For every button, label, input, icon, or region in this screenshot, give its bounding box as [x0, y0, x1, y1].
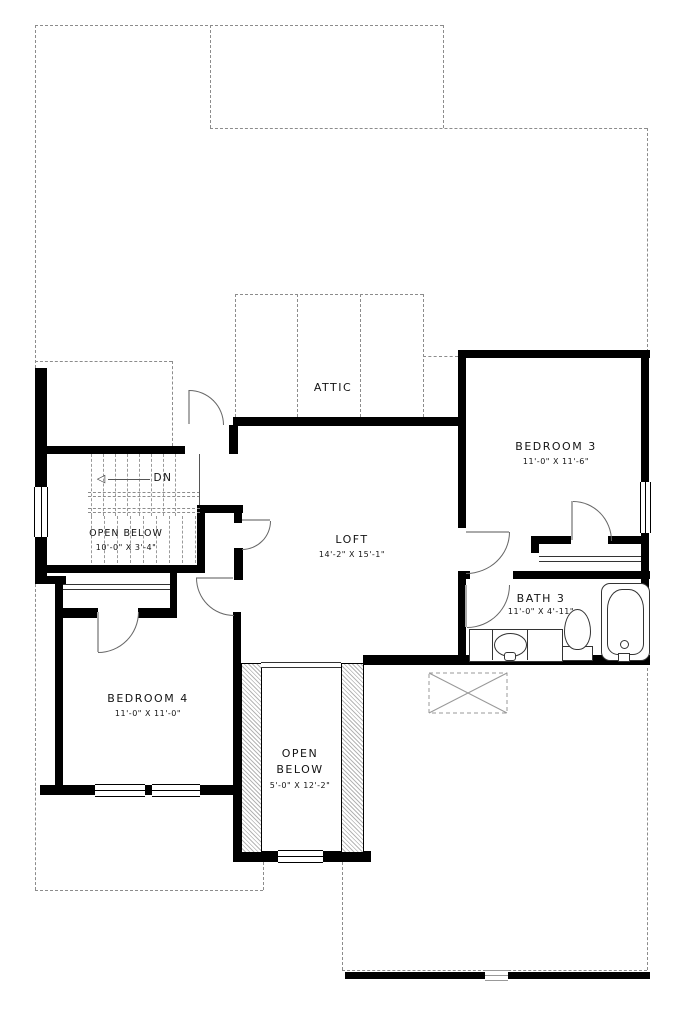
stair-tread — [182, 516, 183, 563]
dims-open-below-stairs: 10'-0" X 3'-4" — [96, 543, 157, 552]
boundary-dash — [35, 25, 36, 368]
door-arc — [189, 390, 224, 425]
door-arc — [98, 612, 139, 653]
boundary-dash — [263, 862, 264, 890]
window — [640, 482, 651, 533]
stair-break-line — [88, 508, 200, 509]
wall-segment — [531, 536, 539, 553]
attic-dash — [35, 361, 172, 362]
wall-segment — [35, 565, 197, 573]
room-label-attic: ATTIC — [314, 381, 352, 394]
stair-tread — [139, 454, 140, 516]
attic-access-hatch — [428, 672, 508, 714]
boundary-dash — [443, 25, 444, 128]
attic-dash — [235, 294, 423, 295]
stair-tread — [169, 516, 170, 563]
room-dims-bath3: 11'-0" X 4'-11" — [508, 607, 574, 616]
attic-dash — [360, 294, 361, 417]
window — [278, 850, 323, 863]
wall-segment — [458, 350, 650, 358]
wall-segment — [234, 513, 242, 523]
boundary-dash — [210, 25, 211, 128]
stair-tread — [151, 454, 152, 516]
down-arrow-icon: ◁ — [97, 472, 105, 485]
door-arc — [466, 532, 510, 574]
door-arc — [196, 578, 234, 616]
boundary-dash — [35, 584, 36, 890]
sink-faucet-icon — [504, 652, 516, 661]
bathtub-drain-icon — [620, 640, 629, 649]
wall-segment — [234, 548, 243, 580]
wall-segment — [513, 571, 650, 579]
boundary-dash — [35, 25, 443, 26]
wall-segment — [608, 536, 641, 544]
stair-break-line — [88, 492, 200, 493]
stair-tread — [143, 516, 144, 563]
wall-segment — [197, 505, 205, 573]
window — [152, 784, 200, 797]
boundary-dash — [342, 862, 343, 970]
chase-header-line — [261, 662, 341, 668]
closet-shelf — [539, 556, 641, 562]
window — [485, 970, 508, 981]
lower-level-wall — [345, 972, 485, 979]
closet-shelf — [63, 584, 170, 590]
door-arc — [573, 501, 612, 541]
wall-segment — [233, 417, 462, 426]
room-dims-loft: 14'-2" X 15'-1" — [319, 550, 385, 559]
room-label-bedroom3: BEDROOM 3 — [515, 440, 596, 453]
door-arc — [242, 521, 271, 550]
boundary-dash — [35, 890, 263, 891]
window — [95, 784, 145, 797]
boundary-dash — [647, 128, 648, 352]
wall-segment — [641, 350, 649, 482]
room-label-bedroom4: BEDROOM 4 — [107, 692, 188, 705]
label-dn: DN — [154, 472, 173, 484]
boundary-dash — [647, 668, 648, 970]
room-dims-bedroom3: 11'-0" X 11'-6" — [523, 457, 589, 466]
stair-tread — [163, 454, 164, 516]
hatched-wall — [341, 663, 364, 853]
stair-break-line — [88, 512, 200, 513]
stair-tread — [195, 516, 196, 563]
stair-tread — [175, 454, 176, 516]
wall-segment — [40, 446, 185, 454]
dims-open-below-chase: 5'-0" X 12'-2" — [270, 781, 331, 790]
wall-segment — [200, 785, 241, 795]
vanity-divider — [492, 629, 493, 660]
floor-plan: ◁ ATTIC LOFT 14'-2" X 15'-1" BEDROOM 3 1… — [0, 0, 683, 1024]
wall-segment — [197, 505, 243, 513]
stair-edge-line — [199, 454, 200, 505]
wall-segment — [145, 785, 152, 795]
lower-level-wall — [508, 972, 650, 979]
door-arc — [467, 585, 510, 628]
attic-dash — [297, 294, 298, 417]
stair-tread — [127, 454, 128, 516]
attic-dash — [423, 356, 458, 357]
room-label-loft: LOFT — [335, 533, 368, 546]
label-open-below-chase-1: OPEN — [282, 747, 318, 760]
attic-dash — [235, 294, 236, 417]
wall-segment — [170, 573, 177, 618]
window — [34, 487, 48, 537]
attic-dash — [172, 361, 173, 446]
stair-tread — [104, 516, 105, 563]
wall-segment — [458, 350, 466, 528]
bathtub-faucet-icon — [618, 653, 630, 662]
wall-segment — [233, 612, 241, 862]
stair-tread — [91, 516, 92, 563]
stair-tread — [117, 516, 118, 563]
down-arrow-line — [108, 479, 150, 480]
wall-segment — [55, 608, 98, 618]
stair-break-line — [88, 496, 200, 497]
room-dims-bedroom4: 11'-0" X 11'-0" — [115, 709, 181, 718]
stair-tread — [103, 454, 104, 516]
label-open-below-chase-2: BELOW — [276, 763, 323, 776]
vanity-divider — [527, 629, 528, 660]
stair-tread — [91, 454, 92, 516]
stair-tread — [115, 454, 116, 516]
stair-tread — [130, 516, 131, 563]
wall-segment — [40, 785, 95, 795]
hatched-wall — [241, 663, 262, 853]
room-label-bath3: BATH 3 — [517, 592, 566, 605]
wall-segment — [35, 368, 47, 487]
boundary-dash — [210, 128, 647, 129]
wall-segment — [229, 425, 238, 454]
label-open-below-stairs: OPEN BELOW — [89, 528, 163, 539]
stair-tread — [156, 516, 157, 563]
